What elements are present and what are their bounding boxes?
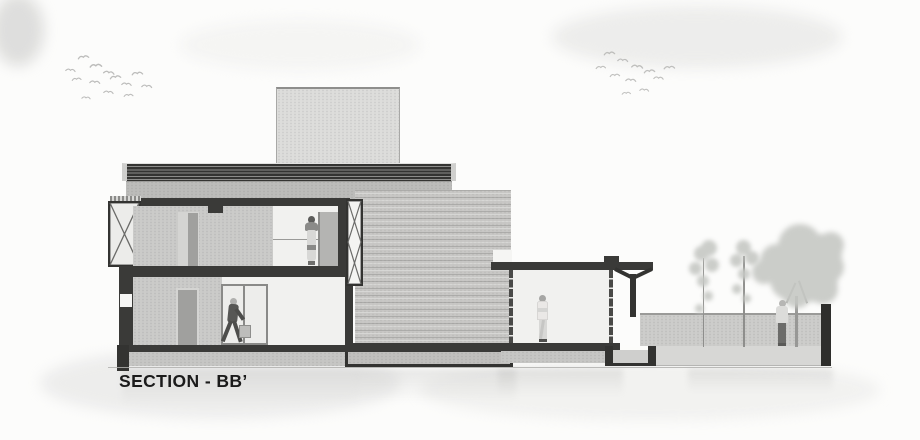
tree-foliage xyxy=(686,242,722,326)
brick-wall-base-band xyxy=(347,343,512,352)
ground-line xyxy=(108,367,832,368)
reflection xyxy=(688,369,833,397)
corner-smudge xyxy=(0,0,44,66)
lower-door-leaf xyxy=(178,290,197,345)
roof-louver-band xyxy=(122,163,456,181)
window-opening xyxy=(120,294,132,307)
stair-tower-block xyxy=(276,87,400,165)
brick-wall-plinth xyxy=(345,352,513,367)
pavilion-room xyxy=(513,270,609,343)
shopping-bag xyxy=(239,325,251,338)
figure-feet xyxy=(778,343,786,346)
ground-slab-cut xyxy=(119,345,348,352)
tree-canopy xyxy=(750,218,845,318)
building-plinth xyxy=(127,352,345,366)
woman-standing-upper-floor xyxy=(303,216,319,266)
man-standing-pavilion xyxy=(535,295,550,343)
reflection xyxy=(356,369,516,409)
beam-pocket-notch xyxy=(493,250,512,262)
figure-feet xyxy=(539,339,547,342)
reflection xyxy=(498,369,623,401)
interior-pier-cut xyxy=(345,277,353,345)
floor-slab-cut xyxy=(133,266,348,277)
figure-waistband xyxy=(307,245,316,250)
wardrobe-panel xyxy=(318,212,338,266)
ceiling-beam-cut xyxy=(208,198,223,213)
sapling-tree xyxy=(686,242,722,347)
man-walking-with-bag-ground-floor xyxy=(221,298,255,346)
figure-leg xyxy=(221,320,233,342)
section-title: SECTION - BB’ xyxy=(119,371,248,392)
brick-wall xyxy=(355,190,511,343)
cloud-wash-2 xyxy=(180,20,420,70)
sunken-step-fill xyxy=(611,350,650,366)
exterior-wall-cut xyxy=(119,266,133,350)
person-standing-garden xyxy=(775,300,789,347)
garden-wall-footing xyxy=(656,346,822,366)
upper-door-leaf xyxy=(188,213,198,266)
y-column-icon xyxy=(608,266,656,318)
roof-slab xyxy=(133,198,350,206)
pavilion-floor-slab xyxy=(495,343,620,351)
figure-torso xyxy=(776,306,788,323)
upper-floor-wall xyxy=(133,206,273,266)
glazing-mullion xyxy=(509,270,513,344)
figure-legs xyxy=(778,323,786,344)
figure-feet xyxy=(308,261,315,265)
bird-flock-left-icon xyxy=(64,46,164,110)
figure-arms-folded xyxy=(537,308,548,312)
bird-flock-right-icon xyxy=(594,38,684,102)
boundary-wall-end-post xyxy=(821,304,831,366)
sunken-step-edge xyxy=(648,346,656,366)
sunken-step-edge xyxy=(605,346,613,366)
section-drawing-canvas: SECTION - BB’ xyxy=(0,0,920,440)
pavilion-plinth xyxy=(501,351,607,363)
cross-bracing-column-icon xyxy=(346,199,363,286)
